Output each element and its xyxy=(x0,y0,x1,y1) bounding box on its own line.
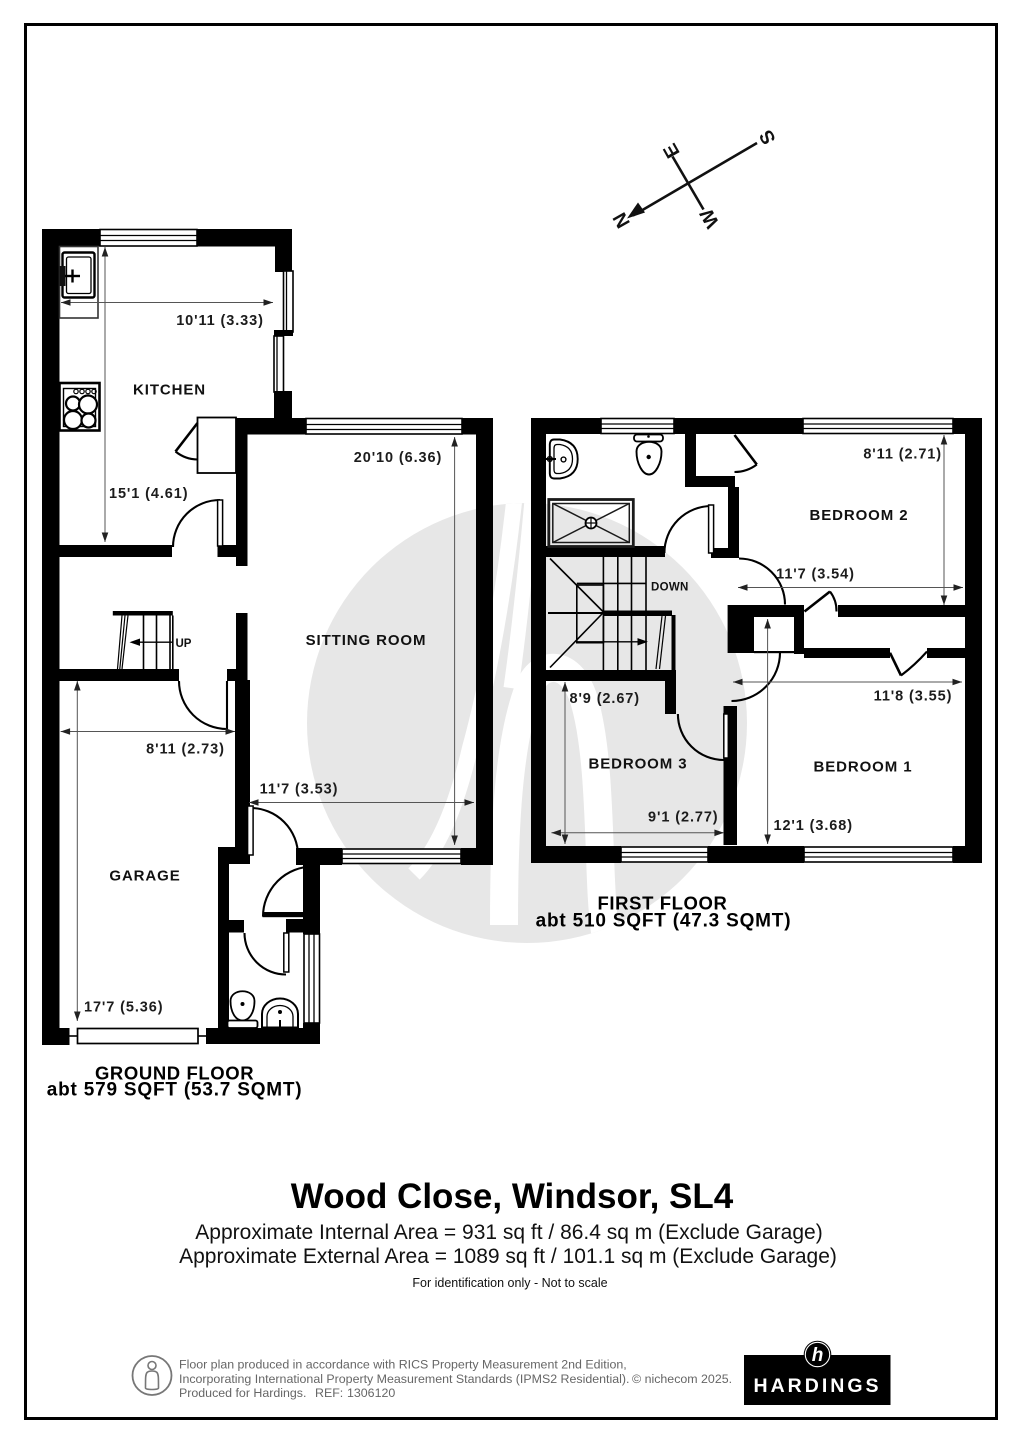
svg-text:Incorporating International Pr: Incorporating International Property Mea… xyxy=(179,1372,629,1386)
svg-text:abt 510 SQFT (47.3 SQMT): abt 510 SQFT (47.3 SQMT) xyxy=(536,911,792,932)
svg-text:SITTING ROOM: SITTING ROOM xyxy=(306,632,427,649)
svg-text:h: h xyxy=(812,1345,824,1366)
svg-text:8'11 (2.71): 8'11 (2.71) xyxy=(863,447,942,463)
svg-text:BEDROOM 1: BEDROOM 1 xyxy=(814,759,913,776)
svg-text:abt 579 SQFT (53.7 SQMT): abt 579 SQFT (53.7 SQMT) xyxy=(47,1080,303,1101)
svg-text:Produced for Hardings.: Produced for Hardings. xyxy=(179,1386,306,1400)
svg-text:DOWN: DOWN xyxy=(651,582,689,594)
svg-text:Floor plan produced in accorda: Floor plan produced in accordance with R… xyxy=(179,1358,627,1372)
svg-text:15'1 (4.61): 15'1 (4.61) xyxy=(109,486,188,502)
svg-text:20'10 (6.36): 20'10 (6.36) xyxy=(354,450,442,466)
svg-text:8'9 (2.67): 8'9 (2.67) xyxy=(570,691,640,707)
svg-text:10'11 (3.33): 10'11 (3.33) xyxy=(176,313,264,329)
svg-text:For identification only - Not: For identification only - Not to scale xyxy=(412,1276,607,1290)
svg-text:BEDROOM 3: BEDROOM 3 xyxy=(589,756,688,773)
svg-text:17'7 (5.36): 17'7 (5.36) xyxy=(84,1000,163,1016)
svg-text:Approximate Internal Area = 93: Approximate Internal Area = 931 sq ft / … xyxy=(195,1221,822,1244)
svg-text:1306120: 1306120 xyxy=(347,1386,395,1400)
svg-text:9'1 (2.77): 9'1 (2.77) xyxy=(648,810,718,826)
svg-text:8'11 (2.73): 8'11 (2.73) xyxy=(146,742,225,758)
svg-text:Wood Close, Windsor, SL4: Wood Close, Windsor, SL4 xyxy=(291,1177,734,1216)
svg-text:UP: UP xyxy=(176,638,192,650)
svg-text:© nichecom 2025.: © nichecom 2025. xyxy=(632,1372,732,1386)
svg-text:11'8 (3.55): 11'8 (3.55) xyxy=(874,689,953,705)
svg-text:BEDROOM 2: BEDROOM 2 xyxy=(810,507,909,524)
svg-text:Approximate External Area = 10: Approximate External Area = 1089 sq ft /… xyxy=(179,1245,837,1268)
svg-text:11'7 (3.53): 11'7 (3.53) xyxy=(260,782,339,798)
svg-text:KITCHEN: KITCHEN xyxy=(133,382,206,399)
svg-text:HARDINGS: HARDINGS xyxy=(753,1375,881,1397)
svg-text:REF:: REF: xyxy=(315,1386,343,1400)
svg-text:12'1 (3.68): 12'1 (3.68) xyxy=(774,818,853,834)
svg-text:11'7 (3.54): 11'7 (3.54) xyxy=(776,567,855,583)
svg-text:GARAGE: GARAGE xyxy=(109,868,180,885)
